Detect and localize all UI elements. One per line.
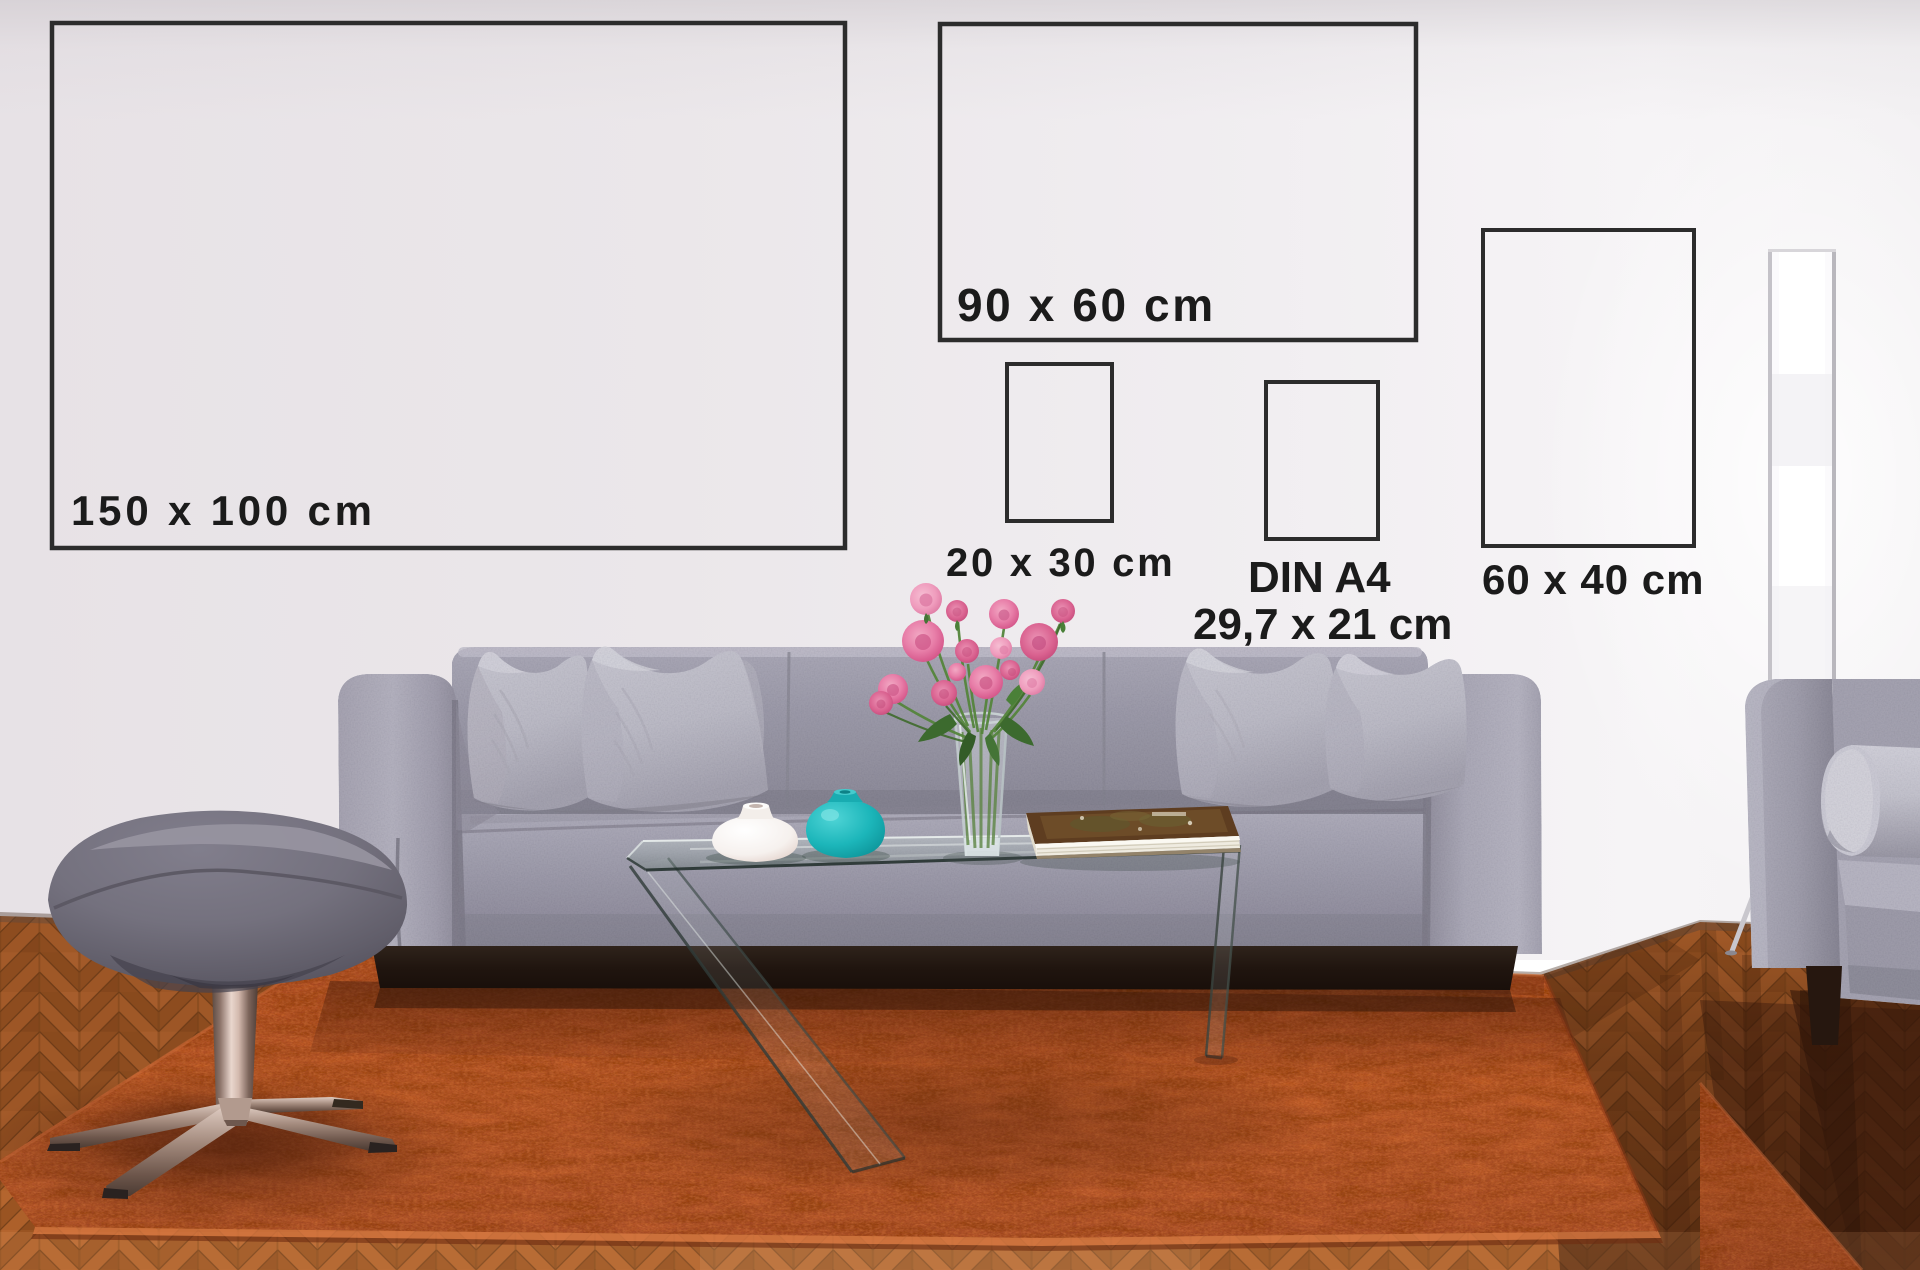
svg-text:20 x 30 cm: 20 x 30 cm: [946, 541, 1175, 585]
svg-text:60 x 40 cm: 60 x 40 cm: [1482, 556, 1705, 603]
svg-text:29,7 x 21 cm: 29,7 x 21 cm: [1193, 600, 1452, 649]
svg-text:DIN A4: DIN A4: [1248, 553, 1391, 602]
svg-text:90 x 60 cm: 90 x 60 cm: [957, 279, 1216, 331]
svg-text:150 x 100 cm: 150 x 100 cm: [71, 487, 376, 534]
